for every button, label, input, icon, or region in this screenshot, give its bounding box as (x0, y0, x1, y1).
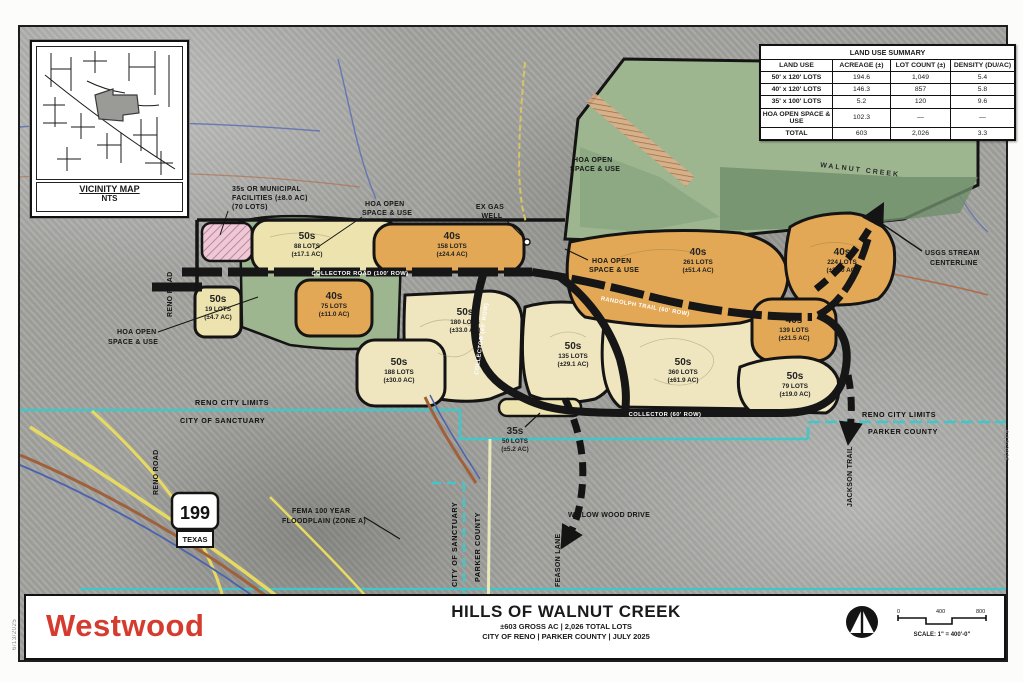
parcel-acres-label: (±29.1 AC) (558, 361, 589, 368)
cell-lots: 2,026 (891, 128, 951, 139)
table-total-row: TOTAL 603 2,026 3.3 (761, 128, 1014, 139)
road-label-south: COLLECTOR (60' ROW) (629, 412, 702, 418)
hoa-label-line1: HOA OPEN (592, 258, 631, 265)
cell-acreage: 194.6 (833, 72, 891, 83)
scale-bar: 0 400 800 SCALE: 1" = 400'-0" (894, 607, 990, 638)
parcel-size-label: 40s (326, 291, 343, 302)
hoa-label-line1: HOA OPEN (117, 329, 156, 336)
municipal-label-line2: FACILITIES (±8.0 AC) (232, 195, 308, 202)
parcel-acres-label: (±21.5 AC) (779, 335, 810, 342)
usgs-label-line1: USGS STREAM (925, 250, 980, 257)
parcel-acres-label: (±30.0 AC) (384, 377, 415, 384)
parcel-40s-75: 40s 75 LOTS (±11.0 AC) (296, 280, 372, 336)
fema-label-line2: FLOODPLAIN (ZONE A) (282, 518, 366, 525)
parcel-municipal-35s (202, 223, 252, 261)
aerial-map-sheet: 50s 88 LOTS (±17.1 AC) 50s 19 LOTS (±4.7… (18, 25, 1008, 662)
cell-density: — (951, 109, 1014, 127)
gas-label-line1: EX GAS (476, 204, 504, 211)
cell-lots: — (891, 109, 951, 127)
parcel-lots-label: 360 LOTS (668, 369, 698, 376)
parcel-acres-label: (±19.0 AC) (780, 391, 811, 398)
feason-lane-label: FEASON LANE (555, 534, 562, 587)
gas-label-line2: WELL (481, 213, 502, 220)
arrow-south-east-icon (848, 375, 851, 429)
parcel-acres-label: (±5.2 AC) (501, 446, 528, 453)
table-row: HOA OPEN SPACE & USE 102.3 — — (761, 109, 1014, 128)
parcel-acres-label: (±24.4 AC) (437, 251, 468, 258)
highway-199-shield: 199 TEXAS (172, 493, 218, 547)
hoa-label-line2: SPACE & USE (108, 339, 158, 346)
parcel-acres-label: (±51.4 AC) (683, 267, 714, 274)
jackson-trail-label: JACKSON TRAIL (847, 446, 854, 507)
plot-date-stamp-right: 6/13/2025 (1002, 430, 1008, 461)
parcel-lots-label: 88 LOTS (294, 243, 321, 250)
reno-road-label-north: RENO ROAD (167, 272, 174, 317)
parcel-lots-label: 139 LOTS (779, 327, 809, 334)
parcel-size-label: 50s (391, 357, 408, 368)
cell-land-use: HOA OPEN SPACE & USE (761, 109, 833, 127)
reno-road-label-south: RENO ROAD (153, 450, 160, 495)
parcel-size-label: 50s (675, 357, 692, 368)
scale-tick-800: 800 (976, 609, 985, 615)
hoa-label-line1: HOA OPEN (365, 201, 404, 208)
hoa-label-line1: HOA OPEN (573, 157, 612, 164)
boundary-label-parker-east: PARKER COUNTY (868, 427, 938, 436)
parcel-lots-label: 261 LOTS (683, 259, 713, 266)
parcel-size-label: 35s (507, 426, 524, 437)
boundary-label-reno-limits-east: RENO CITY LIMITS (862, 410, 936, 419)
plot-date-stamp-left: 6/13/2025 (12, 619, 18, 650)
usgs-label-line2: CENTERLINE (930, 260, 978, 267)
road-label-main: COLLECTOR ROAD (100' ROW) (312, 271, 409, 277)
parcel-40s-224: 40s 224 LOTS (±38.0 AC) (786, 213, 895, 305)
vicinity-map-graphic (37, 47, 182, 177)
table-title: LAND USE SUMMARY (761, 46, 1014, 60)
boundary-label-reno-limits-west: RENO CITY LIMITS (195, 398, 269, 407)
parcel-lots-label: 158 LOTS (437, 243, 467, 250)
cell-acreage: 102.3 (833, 109, 891, 127)
callout-fema: FEMA 100 YEAR FLOODPLAIN (ZONE A) (282, 508, 400, 539)
parcel-lots-label: 19 LOTS (205, 306, 232, 313)
cell-lots: 120 (891, 96, 951, 107)
boundary-label-sanctuary-west: CITY OF SANCTUARY (180, 416, 265, 425)
cell-land-use: 50' x 120' LOTS (761, 72, 833, 83)
col-lot-count: LOT COUNT (±) (891, 60, 951, 71)
cell-density: 3.3 (951, 128, 1014, 139)
cell-density: 9.6 (951, 96, 1014, 107)
table-row: 40' x 120' LOTS 146.3 857 5.8 (761, 84, 1014, 96)
shield-state-label: TEXAS (182, 535, 207, 544)
parcel-lots-label: 50 LOTS (502, 438, 529, 445)
parcel-lots-label: 135 LOTS (558, 353, 588, 360)
table-row: 35' x 100' LOTS 5.2 120 9.6 (761, 96, 1014, 108)
cell-lots: 1,049 (891, 72, 951, 83)
fema-label-line1: FEMA 100 YEAR (292, 508, 350, 515)
title-block-right: 0 400 800 SCALE: 1" = 400'-0" (844, 604, 990, 640)
westwood-logo: Westwood (46, 608, 204, 644)
cell-land-use: 35' x 100' LOTS (761, 96, 833, 107)
parcel-50s-188: 50s 188 LOTS (±30.0 AC) (357, 340, 445, 406)
parcel-lots-label: 188 LOTS (384, 369, 414, 376)
parcel-acres-label: (±17.1 AC) (292, 251, 323, 258)
cell-acreage: 146.3 (833, 84, 891, 95)
col-acreage: ACREAGE (±) (833, 60, 891, 71)
willow-wood-label: WILLOW WOOD DRIVE (568, 512, 650, 519)
parcel-acres-label: (±61.9 AC) (668, 377, 699, 384)
cell-lots: 857 (891, 84, 951, 95)
title-block: Westwood HILLS OF WALNUT CREEK ±603 GROS… (24, 594, 1006, 660)
vicinity-map-box (36, 46, 183, 180)
parcel-lots-label: 75 LOTS (321, 303, 348, 310)
municipal-label-line1: 35s OR MUNICIPAL (232, 186, 302, 193)
parcel-size-label: 50s (210, 294, 227, 305)
vicinity-site-shape (95, 89, 139, 121)
scale-label: SCALE: 1" = 400'-0" (894, 632, 990, 638)
project-subtitle: ±603 GROSS AC | 2,026 TOTAL LOTS (356, 622, 776, 631)
hoa-label-line2: SPACE & USE (362, 210, 412, 217)
table-row: 50' x 120' LOTS 194.6 1,049 5.4 (761, 72, 1014, 84)
hoa-label-line2: SPACE & USE (589, 267, 639, 274)
parcel-40s-158: 40s 158 LOTS (±24.4 AC) (374, 224, 524, 272)
project-location-date: CITY OF RENO | PARKER COUNTY | JULY 2025 (356, 632, 776, 641)
cell-acreage: 5.2 (833, 96, 891, 107)
scale-bar-graphic: 0 400 800 (894, 607, 990, 627)
vicinity-nts: NTS (37, 195, 182, 204)
cell-land-use: 40' x 120' LOTS (761, 84, 833, 95)
cell-density: 5.8 (951, 84, 1014, 95)
parcel-acres-label: (±4.7 AC) (204, 314, 231, 321)
gas-well-icon (524, 239, 530, 245)
col-land-use: LAND USE (761, 60, 833, 71)
shield-route-number: 199 (180, 503, 210, 523)
municipal-label-line3: (70 LOTS) (232, 204, 268, 211)
plan-sheet-page: 50s 88 LOTS (±17.1 AC) 50s 19 LOTS (±4.7… (0, 0, 1023, 682)
parcel-acres-label: (±11.0 AC) (319, 311, 350, 318)
boundary-label-sanctuary-vertical: CITY OF SANCTUARY (450, 502, 459, 587)
scale-tick-400: 400 (936, 609, 945, 615)
callout-35s: 35s 50 LOTS (±5.2 AC) (501, 413, 540, 453)
land-use-summary-table: LAND USE SUMMARY LAND USE ACREAGE (±) LO… (759, 44, 1016, 141)
table-header-row: LAND USE ACREAGE (±) LOT COUNT (±) DENSI… (761, 60, 1014, 72)
cell-density: 5.4 (951, 72, 1014, 83)
parcel-size-label: 40s (444, 231, 461, 242)
col-density: DENSITY (DU/AC) (951, 60, 1014, 71)
vicinity-map-inset: VICINITY MAP NTS (30, 40, 189, 218)
vicinity-caption: VICINITY MAP NTS (36, 182, 183, 212)
project-title: HILLS OF WALNUT CREEK (356, 601, 776, 622)
north-arrow-icon (844, 604, 880, 640)
scale-tick-0: 0 (897, 609, 900, 615)
parcel-size-label: 50s (787, 371, 804, 382)
title-block-center: HILLS OF WALNUT CREEK ±603 GROSS AC | 2,… (356, 601, 776, 641)
cell-land-use: TOTAL (761, 128, 833, 139)
parcel-lots-label: 79 LOTS (782, 383, 809, 390)
cell-acreage: 603 (833, 128, 891, 139)
parcel-size-label: 50s (565, 341, 582, 352)
parcel-50s-19: 50s 19 LOTS (±4.7 AC) (195, 287, 241, 337)
boundary-label-parker-vertical: PARKER COUNTY (473, 512, 482, 582)
hoa-label-line2: SPACE & USE (570, 166, 620, 173)
